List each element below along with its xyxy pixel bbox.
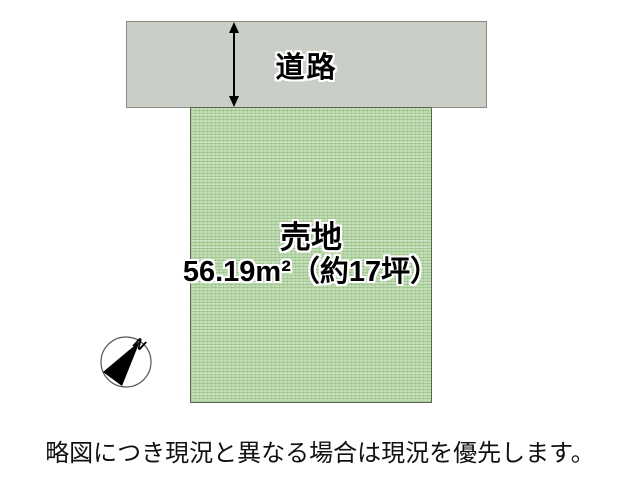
road-width-arrow-icon	[225, 21, 243, 108]
compass-icon: N	[98, 334, 154, 390]
site-plan-canvas: 道路 売地 56.19m²（約17坪） N 略図につき現況と異なる場合は現況を優…	[0, 0, 640, 480]
plot-area: 売地 56.19m²（約17坪）	[190, 107, 432, 403]
plot-title: 売地	[280, 221, 342, 255]
disclaimer-note: 略図につき現況と異なる場合は現況を優先します。	[0, 433, 640, 468]
road-area: 道路	[126, 21, 487, 108]
plot-size-label: 56.19m²（約17坪）	[183, 255, 439, 289]
road-label: 道路	[275, 44, 337, 86]
